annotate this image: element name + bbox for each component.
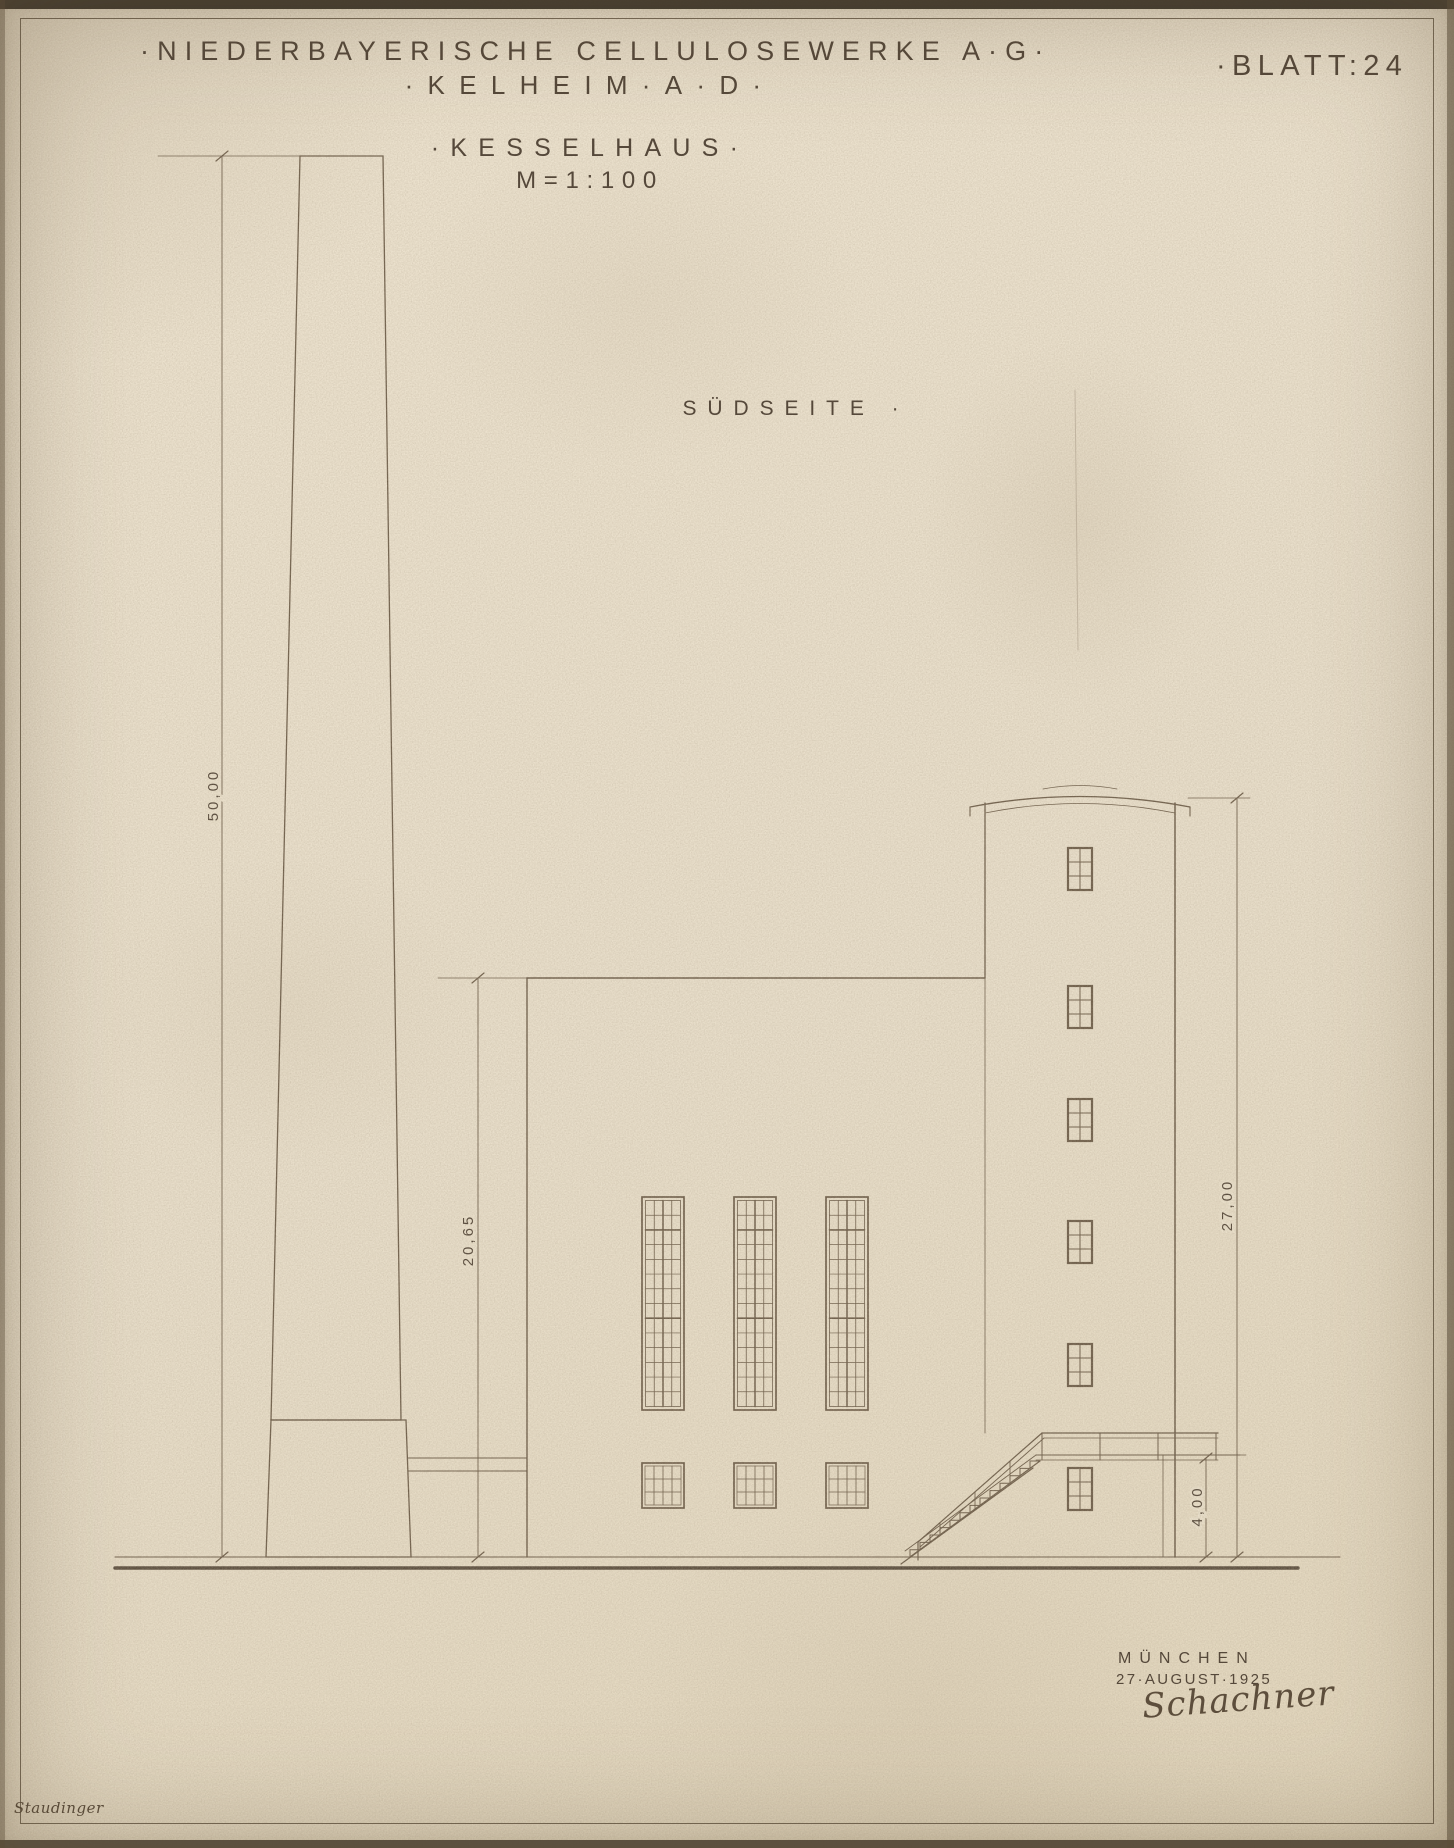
drawing-title: ·KESSELHAUS· — [340, 134, 840, 163]
drawing-scale: M=1:100 — [340, 167, 840, 195]
margin-signature: Staudinger — [14, 1799, 104, 1817]
footer-place: MÜNCHEN — [1118, 1650, 1256, 1668]
view-label: SÜDSEITE · — [676, 397, 916, 421]
paper-grain-texture — [0, 0, 1454, 1848]
company-title: ·NIEDERBAYERISCHE CELLULOSEWERKE A·G· — [140, 36, 1040, 67]
elevation-drawing: 50,00 20,65 27,00 4,00 — [0, 0, 1454, 1848]
sheet-number: ·BLATT:24 — [1216, 50, 1408, 83]
company-location: ·KELHEIM·A·D· — [140, 70, 1040, 101]
drawing-sheet: 50,00 20,65 27,00 4,00 ·NIEDERBAYERISCHE… — [0, 0, 1454, 1848]
